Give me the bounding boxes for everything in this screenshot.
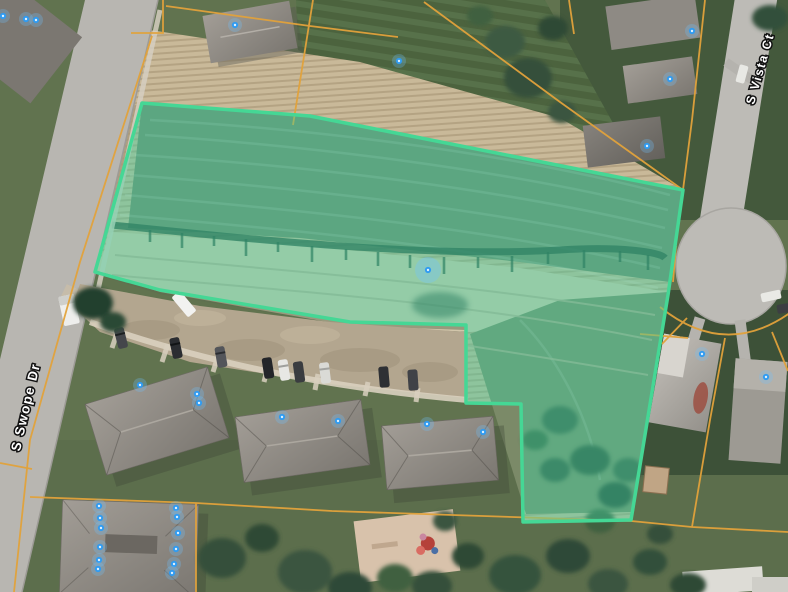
marker-core [98,559,100,561]
marker-core [337,420,339,422]
marker-core [196,393,198,395]
address-marker[interactable] [93,540,107,554]
marker-core [669,78,671,80]
marker-core [765,376,767,378]
address-marker[interactable] [420,417,434,431]
marker-core [701,353,703,355]
marker-core [173,563,175,565]
marker-core [426,423,428,425]
address-marker[interactable] [29,13,43,27]
marker-core [99,546,101,548]
marker-core [177,532,179,534]
address-marker[interactable] [759,370,773,384]
address-marker[interactable] [92,499,106,513]
apartment-building-c [381,415,509,503]
marker-core [175,548,177,550]
address-marker[interactable] [192,396,206,410]
marker-core [175,507,177,509]
marker-core [198,402,200,404]
marker-core [398,60,400,62]
marker-core [176,516,178,518]
address-marker[interactable] [695,347,709,361]
address-marker[interactable] [170,510,184,524]
marker-core [234,24,236,26]
marker-core [482,431,484,433]
address-marker[interactable] [392,54,406,68]
aerial-map: S Swope Dr S Vista Ct [0,0,788,592]
marker-core [100,527,102,529]
marker-core [99,517,101,519]
address-marker[interactable] [331,414,345,428]
marker-core [35,19,37,21]
marker-core [281,416,283,418]
address-marker[interactable] [275,410,289,424]
marker-core [2,15,4,17]
address-marker[interactable] [415,257,441,283]
address-marker[interactable] [685,24,699,38]
address-marker[interactable] [133,378,147,392]
address-marker[interactable] [640,139,654,153]
marker-core [171,572,173,574]
marker-core [97,568,99,570]
map-viewport[interactable]: S Swope Dr S Vista Ct [0,0,788,592]
marker-core [691,30,693,32]
house-east-2 [729,358,788,463]
address-marker[interactable] [476,425,490,439]
address-marker[interactable] [169,542,183,556]
shed [643,466,670,494]
address-marker[interactable] [663,72,677,86]
address-marker[interactable] [228,18,242,32]
marker-core [646,145,648,147]
apartment-building-south [59,500,209,592]
address-marker[interactable] [91,562,105,576]
address-marker[interactable] [171,526,185,540]
marker-core [427,269,429,271]
marker-core [25,18,27,20]
marker-core [98,505,100,507]
address-marker[interactable] [94,521,108,535]
address-marker[interactable] [165,566,179,580]
marker-core [139,384,141,386]
